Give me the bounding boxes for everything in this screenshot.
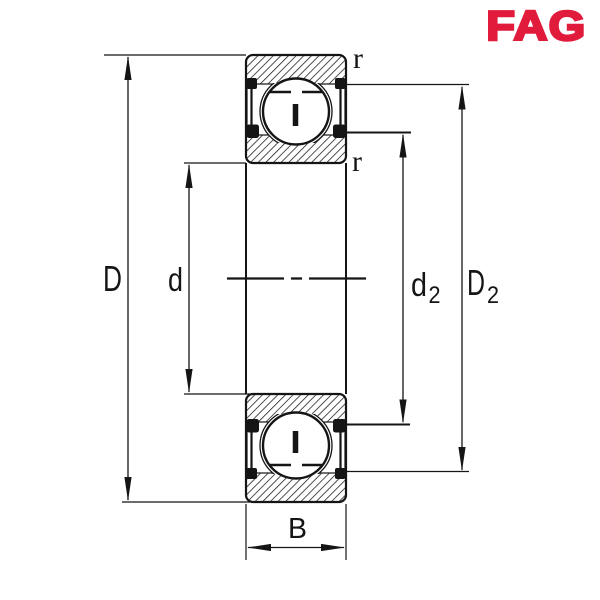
arrow-D2-down [458, 447, 465, 471]
arrow-B-right [321, 544, 345, 551]
arrow-B-left [247, 544, 271, 551]
label-chamfer-r-top: r [353, 42, 363, 75]
label-width-B: B [288, 513, 307, 545]
arrow-D-up [124, 56, 131, 80]
label-outer-diameter-D: D [103, 258, 122, 299]
seal-lip-top-right [333, 125, 346, 139]
arrow-D-down [124, 477, 131, 501]
arrow-d2-up [399, 134, 406, 158]
arrow-D2-up [458, 86, 465, 110]
label-bore-diameter-d: d [168, 261, 183, 298]
label-outer-shoulder-D2-base: D [467, 262, 485, 303]
seal-lip-top-left [247, 125, 260, 139]
seal-lip-bottom-right [333, 419, 346, 433]
bearing-section-bottom [246, 394, 346, 502]
arrow-d-up [185, 164, 192, 188]
label-chamfer-r-bottom: r [352, 145, 362, 178]
bearing-dimension-drawing: FAG [0, 0, 600, 600]
arrow-d-down [185, 369, 192, 393]
arrow-d2-down [399, 400, 406, 424]
bearing-section-top [246, 55, 346, 163]
label-inner-shoulder-d2-base: d [411, 266, 427, 303]
seal-lip-bottom-left [247, 419, 260, 433]
label-outer-shoulder-D2-subscript: 2 [487, 282, 499, 309]
drawing-canvas: D d d 2 D 2 B r r [0, 0, 600, 600]
label-inner-shoulder-d2-subscript: 2 [429, 282, 441, 309]
